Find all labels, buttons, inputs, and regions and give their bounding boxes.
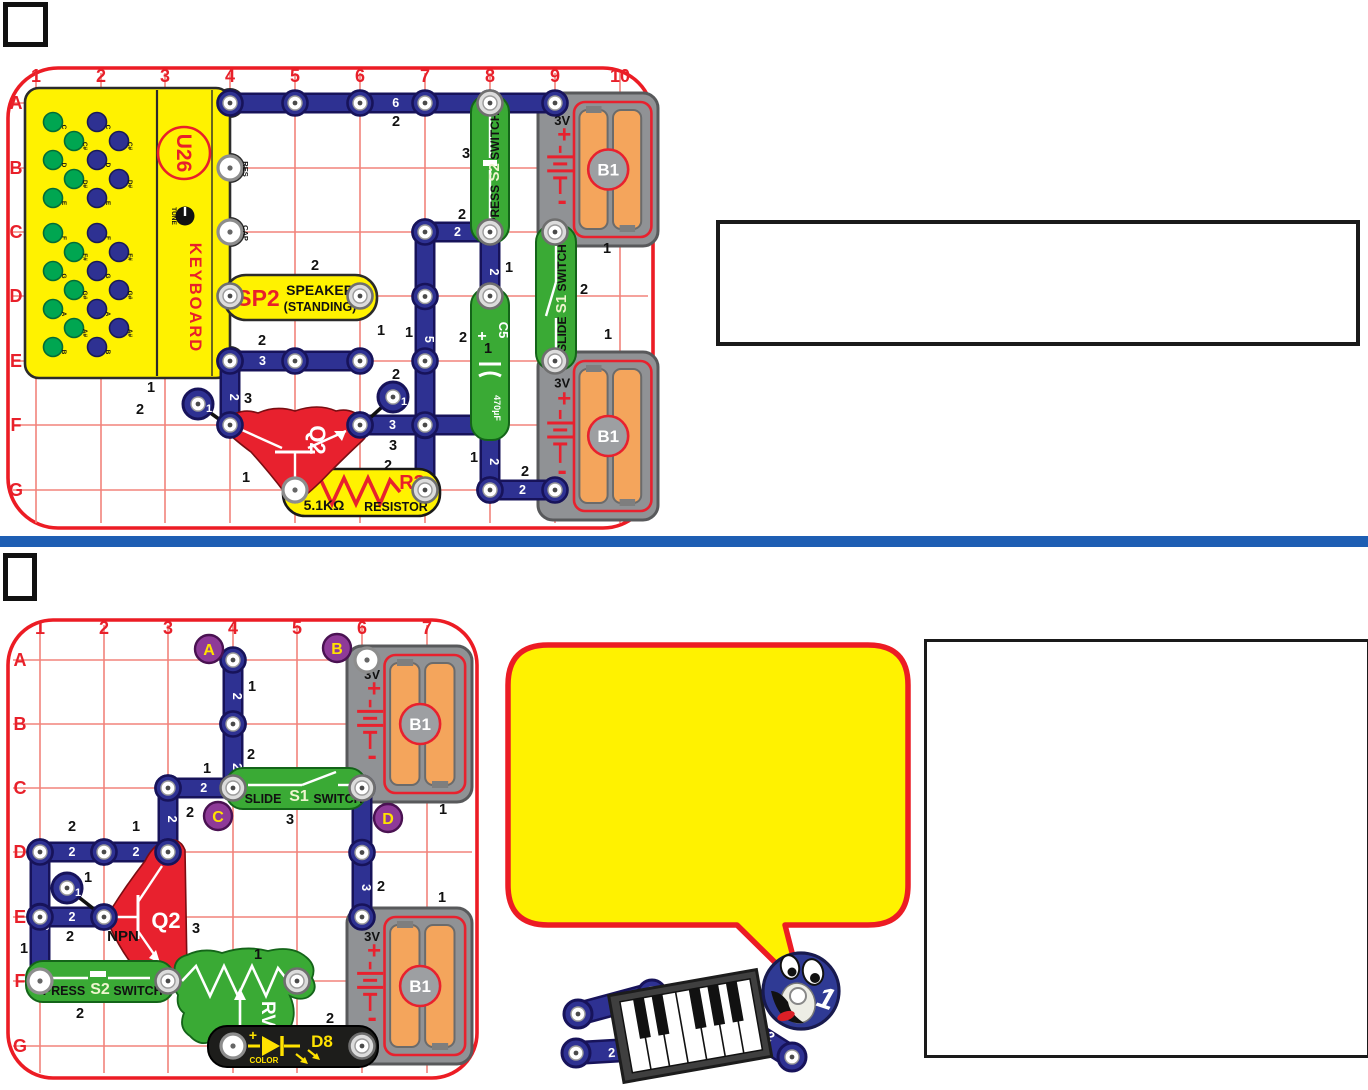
level-label: 1: [20, 941, 28, 957]
level-label: 2: [258, 333, 266, 349]
level-label: 1: [248, 679, 256, 695]
battery-code: B1: [409, 977, 431, 996]
wire-size-label: 2: [487, 269, 501, 276]
note-button-green: [44, 338, 63, 357]
battery-code: B1: [597, 161, 619, 180]
level-label: 1: [147, 380, 155, 396]
note-label: D: [60, 163, 67, 168]
grid-col-label: 9: [550, 66, 560, 86]
wire-size-label: 1: [206, 403, 212, 415]
tune-label: TUNE: [170, 207, 177, 225]
note-button-green: [65, 319, 84, 338]
note-button-blue: [88, 189, 107, 208]
limb-size-label: 2: [608, 1045, 616, 1060]
note-button-green: [44, 189, 63, 208]
grid-col-label: 5: [292, 618, 302, 638]
wire-size-label: 1: [401, 396, 407, 408]
grid-row-label: G: [9, 480, 23, 500]
grid-col-label: 7: [422, 618, 432, 638]
grid-row-label: B: [14, 714, 27, 734]
level-label: 1: [242, 470, 250, 486]
grid-col-label: 3: [163, 618, 173, 638]
note-button-blue: [88, 224, 107, 243]
level-label: 2: [392, 114, 400, 130]
wire-size-label: 2: [227, 394, 241, 401]
level-label: 2: [521, 464, 529, 480]
speaker-word: SPEAKER: [286, 282, 354, 298]
level-label: 2: [459, 330, 467, 346]
transistor-code: Q2: [151, 908, 180, 933]
snap-wire: 5: [413, 220, 438, 503]
wire-size-label: 2: [454, 225, 461, 239]
speaker-part: SP2SPEAKER(STANDING): [218, 275, 378, 320]
battery-plus: +: [557, 122, 571, 149]
circuit-point-marker: C: [204, 802, 232, 830]
note-button-blue: [88, 338, 107, 357]
note-button-green: [44, 300, 63, 319]
note-button-blue: [110, 132, 129, 151]
mascot-character: 2221: [562, 953, 839, 1082]
level-label: 2: [392, 367, 400, 383]
level-label: 2: [76, 1006, 84, 1022]
grid-col-label: 6: [355, 66, 365, 86]
grid-col-label: 7: [420, 66, 430, 86]
level-label: 2: [247, 747, 255, 763]
note-button-green: [65, 170, 84, 189]
wire-size-label: 2: [200, 781, 207, 795]
slide-switch-label: SLIDE S1 SWITCH: [553, 244, 570, 352]
mascot-head: 1: [763, 953, 839, 1029]
slide-switch-part: SLIDE S1 SWITCH: [536, 220, 576, 374]
level-label: 2: [326, 1011, 334, 1027]
level-label: 1: [203, 761, 211, 777]
grid-col-label: 10: [610, 66, 630, 86]
battery-plus: +: [557, 386, 571, 413]
keyboard-part: CCC#C#DDD#D#EEFFF#F#GGG#G#AAA#A#BBU26TUN…: [25, 88, 250, 378]
level-label: 2: [377, 879, 385, 895]
wire-size-label: 2: [519, 483, 526, 497]
wire-size-label: 2: [69, 910, 76, 924]
note-button-blue: [88, 151, 107, 170]
level-label: 2: [311, 258, 319, 274]
wire-size-label: 2: [69, 845, 76, 859]
marker-letter: D: [382, 811, 394, 828]
grid-col-label: 5: [290, 66, 300, 86]
battery-code: B1: [409, 715, 431, 734]
battery-minus: -: [558, 184, 567, 215]
note-button-blue: [110, 281, 129, 300]
level-label: 3: [244, 391, 252, 407]
grid-row-label: A: [10, 93, 23, 113]
capacitor-value: 470µF: [492, 395, 502, 421]
note-label: C#: [126, 142, 133, 151]
battery-plus: +: [367, 938, 381, 965]
note-label: A: [104, 312, 111, 317]
piano-keyboard-body: [609, 970, 772, 1083]
grid-row-label: F: [15, 971, 26, 991]
level-label: 1: [405, 325, 413, 341]
wire-size-label: 6: [392, 96, 399, 110]
note-label: A: [60, 312, 67, 317]
grid-row-label: D: [14, 842, 27, 862]
capacitor-code: C5: [496, 322, 511, 339]
wire-size-label: 2: [487, 458, 501, 465]
slide-switch-word: SLIDE: [245, 792, 282, 806]
note-label: D: [104, 163, 111, 168]
level-label: 1: [505, 260, 513, 276]
grid-col-label: 8: [485, 66, 495, 86]
grid-row-label: C: [10, 222, 23, 242]
note-label: F#: [126, 253, 133, 261]
level-label: 1: [254, 947, 262, 963]
level-label: 1: [132, 819, 140, 835]
grid-row-label: C: [14, 778, 27, 798]
snap-wire: 6: [218, 91, 568, 116]
note-label: G#: [81, 291, 88, 300]
level-label: 1: [603, 241, 611, 257]
led-plus: +: [249, 1027, 257, 1043]
transistor-type: NPN: [107, 928, 139, 945]
note-label: G: [104, 273, 111, 278]
level-label: 1: [438, 890, 446, 906]
keyboard-ic-code: U26: [172, 134, 195, 173]
speaker-word: (STANDING): [284, 300, 357, 314]
level-label: 3: [192, 921, 200, 937]
grid-col-label: 2: [99, 618, 109, 638]
note-label: A#: [126, 329, 133, 338]
note-label: C: [104, 125, 111, 130]
mascot-nose: [790, 988, 806, 1004]
speech-bubble: [508, 645, 908, 988]
marker-letter: B: [331, 641, 343, 658]
resistor-word: RESISTOR: [364, 500, 428, 514]
battery-plus: +: [367, 676, 381, 703]
note-label: G: [60, 273, 67, 278]
speech-bubble-shape: [508, 645, 908, 988]
note-label: F#: [81, 253, 88, 261]
note-label: B: [60, 350, 67, 355]
note-button-green: [44, 224, 63, 243]
cap-label: CAP: [241, 225, 250, 241]
note-button-blue: [88, 300, 107, 319]
adjustable-resistor-code: RV: [257, 1001, 278, 1027]
circuit-illustrations: 12345678910ABCDEFG3V+-B13V+-B1CCC#C#DDD#…: [0, 0, 1368, 1090]
note-button-blue: [88, 262, 107, 281]
circuit-point-marker: D: [374, 804, 402, 832]
transistor-code: Q2: [305, 425, 330, 454]
slide-switch-code: S1: [289, 788, 309, 805]
capacitor-part: +C5470µF: [471, 284, 511, 441]
level-label: 1: [604, 327, 612, 343]
press-switch-label: PRESS S2 SWITCH: [486, 112, 503, 225]
slide-switch-part: SLIDES1SWITCH: [221, 768, 375, 809]
manual-page: { "colors":{ "board_border":"#EC1C24","g…: [0, 0, 1368, 1090]
level-label: 1: [484, 341, 492, 357]
level-label: 3: [389, 438, 397, 454]
note-label: A#: [81, 329, 88, 338]
level-label: 2: [136, 402, 144, 418]
circuit-board: 1234567ABCDEFG3V+-B13V+-B12222223231Q2NP…: [8, 618, 477, 1078]
level-label: 2: [384, 458, 392, 474]
level-label: 2: [66, 929, 74, 945]
wire-size-label: 5: [422, 336, 436, 343]
level-label: 1: [470, 450, 478, 466]
note-button-green: [65, 132, 84, 151]
note-button-green: [44, 262, 63, 281]
res-label: RES: [241, 161, 250, 176]
wire-size-label: 3: [359, 884, 373, 891]
note-button-blue: [110, 243, 129, 262]
battery-code: B1: [597, 427, 619, 446]
note-label: B: [104, 350, 111, 355]
grid-col-label: 3: [160, 66, 170, 86]
wire-size-label: 3: [259, 354, 266, 368]
led-part: +D8COLOR: [208, 1026, 378, 1067]
grid-row-label: B: [10, 158, 23, 178]
snap-wire: 2: [478, 478, 568, 503]
note-button-blue: [110, 319, 129, 338]
level-label: 1: [84, 870, 92, 886]
note-label: E: [104, 201, 111, 206]
grid-row-label: F: [11, 415, 22, 435]
led-word: COLOR: [250, 1056, 279, 1065]
note-label: F: [104, 236, 111, 240]
resistor-value: 5.1KΩ: [304, 497, 345, 513]
grid-row-label: E: [14, 907, 26, 927]
note-button-green: [65, 243, 84, 262]
level-label: 3: [462, 146, 470, 162]
level-label: 3: [286, 812, 294, 828]
grid-col-label: 1: [31, 66, 41, 86]
press-switch-part: PRESS S2 SWITCH: [471, 91, 509, 245]
note-label: F: [60, 236, 67, 240]
grid-row-label: A: [14, 650, 27, 670]
note-button-green: [65, 281, 84, 300]
note-label: G#: [126, 291, 133, 300]
grid-row-label: E: [10, 351, 22, 371]
note-button-green: [44, 151, 63, 170]
press-switch-part: PRESSS2SWITCH: [26, 961, 181, 1002]
grid-col-label: 6: [357, 618, 367, 638]
marker-letter: C: [212, 809, 224, 826]
circuit-board: 12345678910ABCDEFG3V+-B13V+-B1CCC#C#DDD#…: [8, 66, 658, 528]
press-switch-code: S2: [90, 981, 110, 998]
note-label: D#: [81, 180, 88, 189]
note-button-blue: [88, 113, 107, 132]
level-label: 2: [580, 282, 588, 298]
led-code: D8: [311, 1032, 333, 1051]
grid-col-label: 4: [228, 618, 238, 638]
wire-size-label: 1: [75, 887, 81, 899]
note-button-blue: [110, 170, 129, 189]
grid-row-label: D: [10, 286, 23, 306]
level-label: 1: [377, 323, 385, 339]
wire-size-label: 3: [389, 418, 396, 432]
note-label: E: [60, 201, 67, 206]
note-label: C: [60, 125, 67, 130]
level-label: 2: [186, 805, 194, 821]
circuit-point-marker: B: [323, 634, 351, 662]
note-button-green: [44, 113, 63, 132]
wire-size-label: 2: [230, 693, 244, 700]
grid-row-label: G: [13, 1036, 27, 1056]
note-label: C#: [81, 142, 88, 151]
battery-minus: -: [367, 740, 376, 771]
grid-col-label: 4: [225, 66, 235, 86]
level-label: 1: [439, 802, 447, 818]
note-label: D#: [126, 180, 133, 189]
grid-col-label: 1: [35, 618, 45, 638]
grid-col-label: 2: [96, 66, 106, 86]
circuit-point-marker: A: [195, 635, 223, 663]
wire-size-label: 2: [165, 816, 179, 823]
level-label: 2: [68, 819, 76, 835]
level-label: 2: [458, 207, 466, 223]
marker-letter: A: [203, 642, 215, 659]
keyboard-label: KEYBOARD: [186, 243, 204, 353]
wire-size-label: 2: [133, 845, 140, 859]
